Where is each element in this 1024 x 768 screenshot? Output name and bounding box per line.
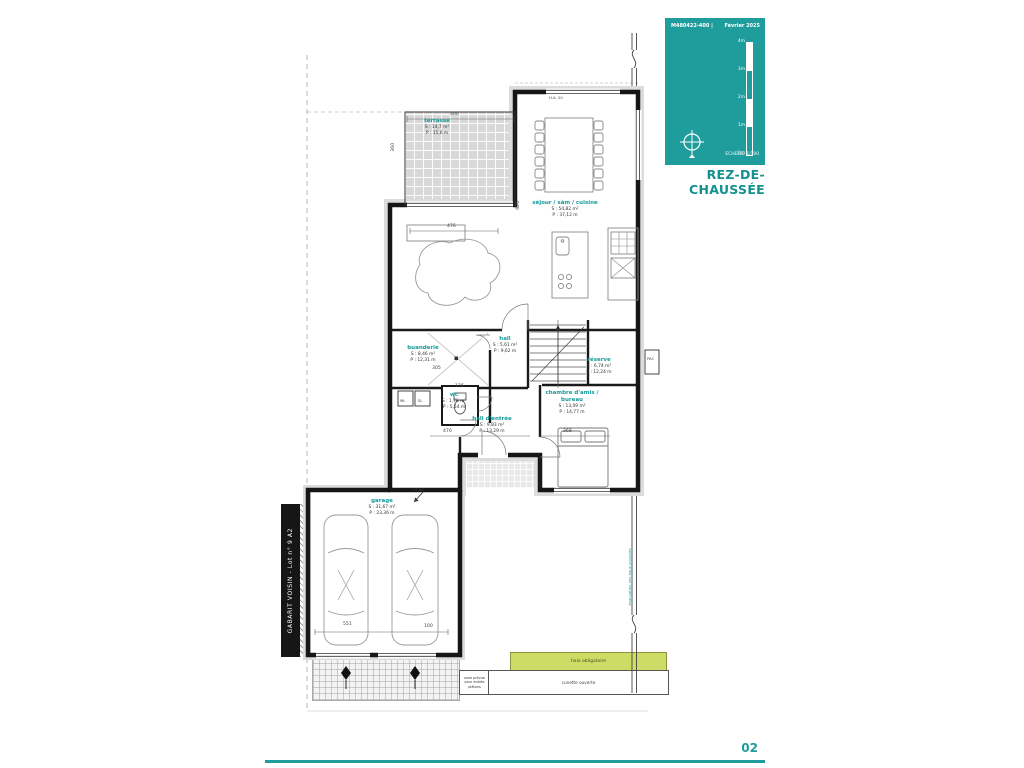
heat-pump-box xyxy=(645,350,659,374)
dim-terrace-width: 400 xyxy=(450,112,459,117)
scale-label: ECHELLE 1/100 xyxy=(725,152,759,157)
dim-garage-width: 551 xyxy=(343,622,352,627)
room-perimeter: P : 14,77 m xyxy=(534,410,610,416)
room-perimeter: P : 5,54 m xyxy=(437,405,471,411)
room-name: chambre d'amis / bureau xyxy=(534,390,610,404)
floor-title: REZ-DE-CHAUSSÉE xyxy=(645,167,765,197)
room-perimeter: P : 12,31 m xyxy=(395,358,451,364)
dim-buanderie-width: 305 xyxy=(432,366,441,371)
room-sejour: séjour / sàm / cuisine S : 54,82 m² P : … xyxy=(525,200,605,219)
dim-chambre-width: 368 xyxy=(563,429,572,434)
scale-tick: 4m xyxy=(729,39,745,44)
scale-tick: 3m xyxy=(729,67,745,72)
dim-entry-width: 476 xyxy=(443,429,452,434)
scale-tick: 2m xyxy=(729,95,745,100)
room-buanderie: buanderie S : 8,46 m² P : 12,31 m xyxy=(395,345,451,364)
floorplan-linework xyxy=(270,25,670,735)
title-block: M480422-400 | Février 2025 4m 3m 2m 1m 0… xyxy=(665,18,765,165)
room-perimeter: P : 37,12 m xyxy=(525,213,605,219)
dim-wc-width: 176 xyxy=(455,384,464,389)
room-garage: garage S : 31,67 m² P : 23,36 m xyxy=(352,498,412,517)
north-compass-icon xyxy=(679,129,705,159)
room-terrasse: terrasse S : 14,7 m² P : 15,6 m xyxy=(407,118,467,137)
room-reserve: réserve S : 6,74 m² P : 12,24 m xyxy=(577,357,621,376)
scale-bar xyxy=(746,42,753,156)
heat-pump-label: PAC xyxy=(647,356,654,361)
dim-garage-offset: 100 xyxy=(424,624,433,629)
issue-date: Février 2025 xyxy=(724,23,760,29)
dryer-label: SL xyxy=(418,398,423,403)
project-reference: M480422-400 | xyxy=(671,23,713,29)
dim-living-width: 476 xyxy=(447,224,456,229)
room-perimeter: P : 23,36 m xyxy=(352,511,412,517)
boundary-annotation: évacuation des eaux pluviales xyxy=(627,548,632,610)
room-hall: hall S : 5,61 m² P : 9,62 m xyxy=(487,336,523,355)
drawing-sheet: haie obligatoire zone prévue pour entrée… xyxy=(0,0,1024,768)
direction-marker xyxy=(341,666,420,689)
room-perimeter: P : 12,24 m xyxy=(577,370,621,376)
room-perimeter: P : 13,29 m xyxy=(461,429,523,435)
page-number: 02 xyxy=(700,741,758,755)
room-perimeter: P : 15,6 m xyxy=(407,131,467,137)
washer-label: ML xyxy=(400,398,405,403)
level-label: +0,00 xyxy=(412,487,424,492)
dim-terrace-height: 360 xyxy=(391,143,396,152)
room-wc: wc S : 1,76 m² P : 5,54 m xyxy=(437,392,471,411)
footer-rule xyxy=(265,760,765,763)
room-chambre: chambre d'amis / bureau S : 13,09 m² P :… xyxy=(534,390,610,416)
ha-label: H.A. 20 xyxy=(549,95,563,100)
room-perimeter: P : 9,62 m xyxy=(487,349,523,355)
scale-tick: 1m xyxy=(729,123,745,128)
dim-kitchen-height: 620 xyxy=(516,201,521,210)
room-hall-entree: hall d'entrée S : 9,83 m² P : 13,29 m xyxy=(461,416,523,435)
